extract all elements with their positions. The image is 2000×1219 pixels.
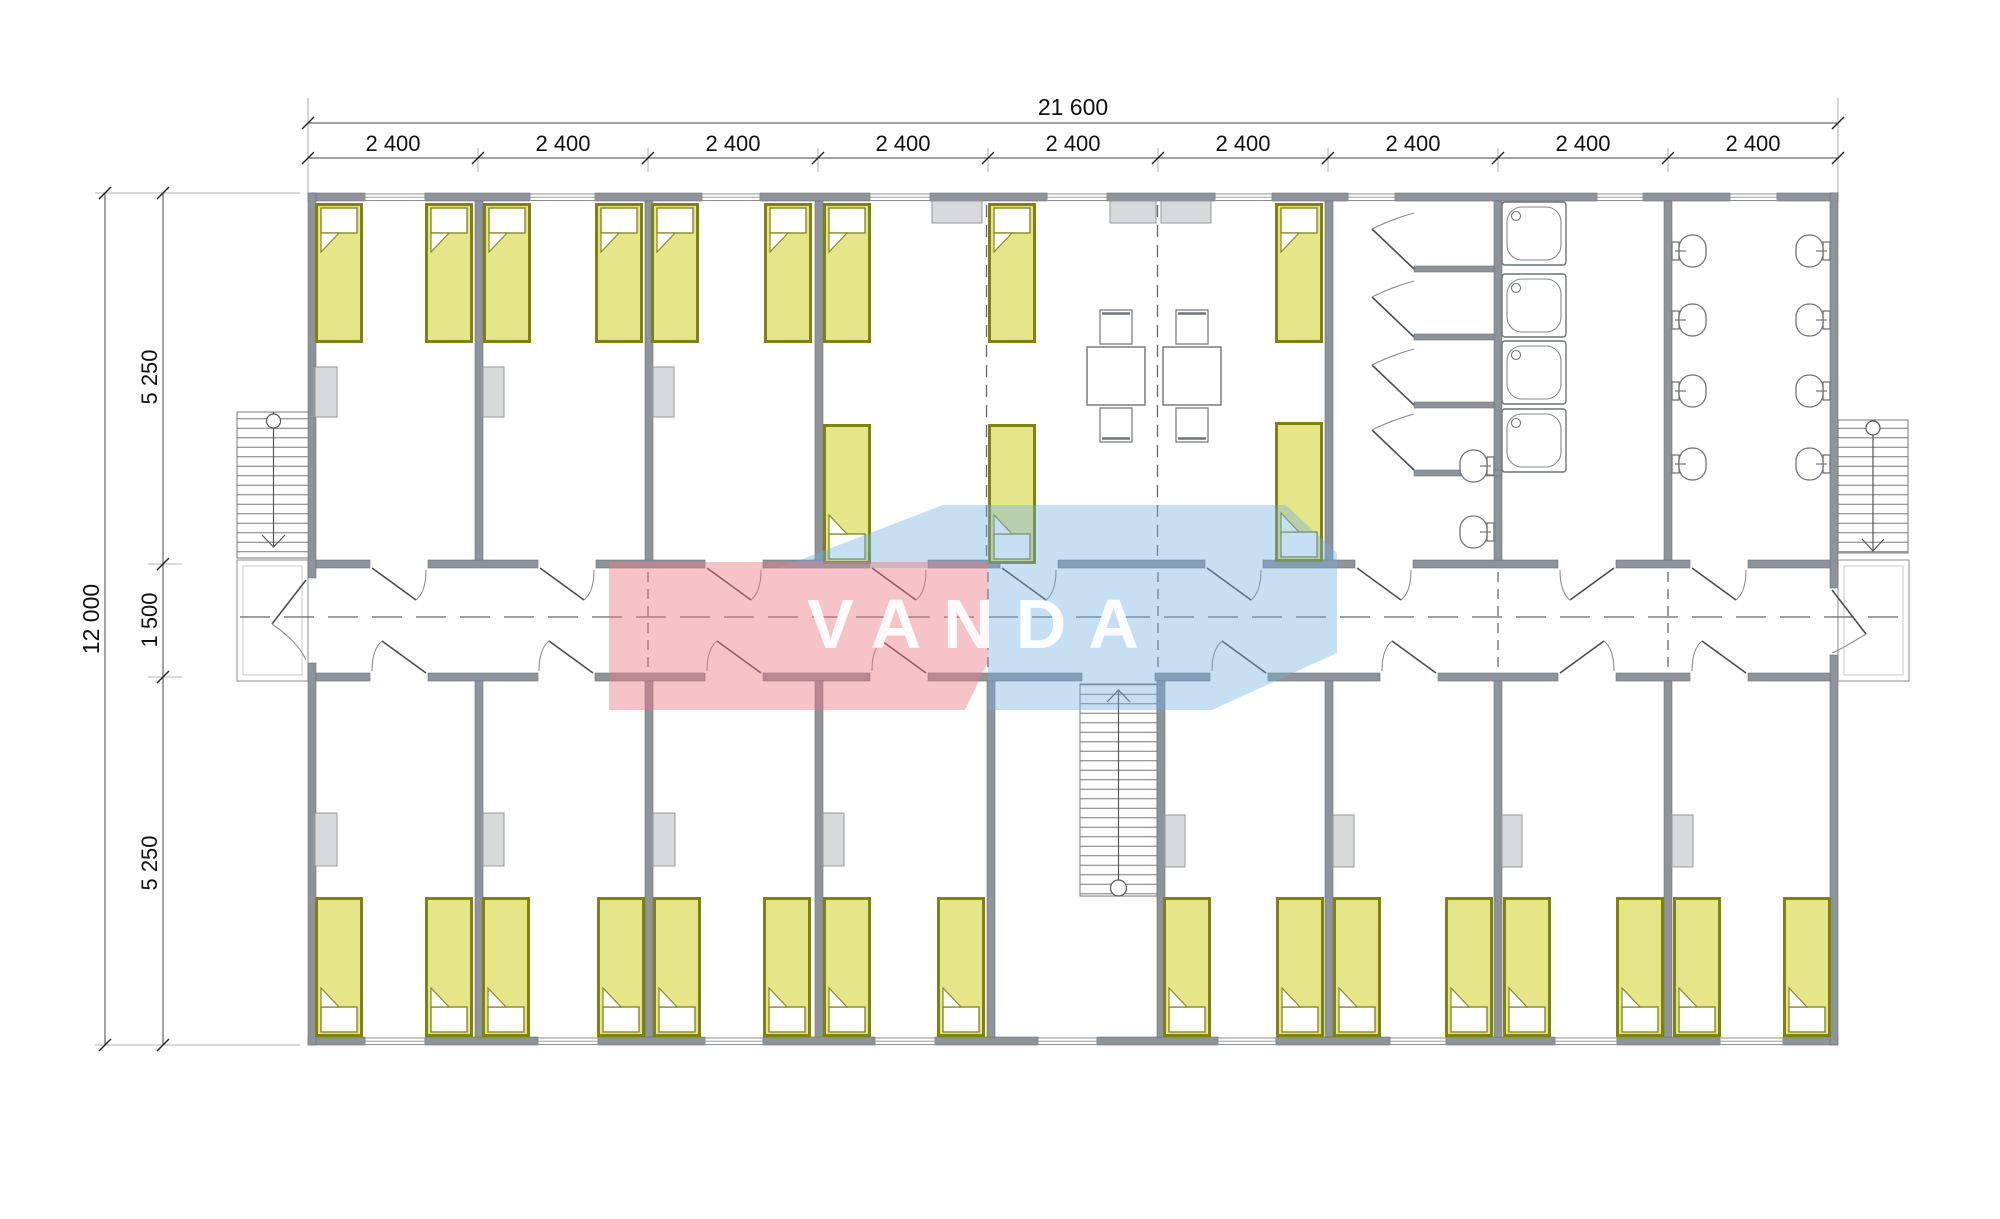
door: [540, 568, 594, 600]
wardrobe: [315, 367, 337, 417]
window: [1215, 194, 1272, 201]
dim-segment: 2 400: [1555, 131, 1610, 156]
bed: [1447, 899, 1492, 1036]
wardrobe: [483, 367, 504, 417]
toilet-room: [1672, 235, 1830, 480]
chair: [1100, 310, 1132, 344]
window: [702, 194, 760, 201]
dim-segment: 1 500: [137, 592, 162, 647]
wardrobe: [653, 813, 675, 866]
door: [1560, 641, 1614, 673]
shower-door: [1372, 297, 1414, 337]
vanda-watermark: VANDA: [609, 505, 1337, 710]
window: [1730, 194, 1777, 201]
toilet: [1796, 375, 1830, 407]
bed: [1165, 899, 1210, 1036]
toilet: [1672, 448, 1706, 480]
toilet: [1672, 304, 1706, 336]
bed: [765, 899, 810, 1036]
bed: [1277, 205, 1322, 342]
toilet: [1796, 304, 1830, 336]
dim-segment: 5 250: [137, 349, 162, 404]
door: [1357, 568, 1411, 600]
left-staircase: [237, 412, 310, 558]
window: [1348, 194, 1395, 201]
window: [1390, 1038, 1446, 1045]
window: [1047, 194, 1107, 201]
door: [372, 641, 426, 673]
bed: [484, 899, 529, 1036]
dim-segment: 2 400: [1385, 131, 1440, 156]
wardrobe: [315, 813, 337, 866]
bed: [766, 205, 811, 342]
door: [1692, 568, 1746, 600]
top-dimension-lines: 21 600 2 400 2 400 2 400 2 400 2 400 2 4…: [302, 94, 1844, 193]
window: [530, 194, 595, 201]
dim-total-width: 21 600: [1038, 94, 1108, 120]
dim-total-height: 12 000: [78, 584, 104, 654]
wash-basin: [1460, 516, 1494, 548]
wardrobe: [483, 813, 504, 866]
right-staircase: [1838, 420, 1908, 553]
bed: [653, 205, 698, 342]
dim-segment: 5 250: [137, 835, 162, 890]
left-dimension-lines: 12 000 5 250 1 500 5 250: [78, 187, 300, 1051]
door: [372, 568, 426, 600]
bed: [485, 205, 530, 342]
dining-area: [1087, 310, 1221, 442]
shower-room: [1372, 202, 1566, 548]
bed: [825, 205, 870, 342]
dim-segment: 2 400: [535, 131, 590, 156]
door: [1560, 568, 1614, 600]
wall-cabinet: [932, 201, 982, 223]
bed: [1618, 899, 1663, 1036]
wardrobe: [1165, 815, 1185, 867]
bed: [427, 899, 472, 1036]
shower-door: [1372, 229, 1414, 269]
window: [538, 1038, 598, 1045]
shower-tray: [1502, 341, 1566, 404]
shower-door: [1372, 430, 1414, 470]
wall-cabinet: [1110, 201, 1156, 223]
window: [870, 194, 930, 201]
wash-basin: [1460, 450, 1494, 482]
dim-segment: 2 400: [875, 131, 930, 156]
wall-cabinet: [1161, 201, 1211, 223]
wardrobe: [653, 367, 674, 417]
dining-table: [1163, 347, 1221, 405]
bed: [1785, 899, 1830, 1036]
window: [1038, 1038, 1097, 1045]
window: [1555, 1038, 1617, 1045]
window: [365, 194, 425, 201]
door: [539, 641, 593, 673]
chair: [1176, 310, 1208, 344]
window: [1720, 1038, 1783, 1045]
dim-segment: 2 400: [1045, 131, 1100, 156]
chair: [1176, 408, 1208, 442]
window: [875, 1038, 935, 1045]
shower-door: [1372, 365, 1414, 405]
shower-tray: [1502, 202, 1566, 265]
toilet: [1796, 235, 1830, 267]
internal-staircase: [1080, 684, 1157, 896]
bed: [825, 899, 870, 1036]
toilet: [1672, 375, 1706, 407]
floor-plan-drawing: 21 600 2 400 2 400 2 400 2 400 2 400 2 4…: [0, 0, 2000, 1219]
wardrobe: [1672, 815, 1693, 867]
window: [705, 1038, 763, 1045]
watermark-text: VANDA: [807, 585, 1161, 663]
left-entrance-vestibule: [237, 560, 308, 681]
wardrobe: [1502, 815, 1522, 867]
floor-plan-page: 21 600 2 400 2 400 2 400 2 400 2 400 2 4…: [0, 0, 2000, 1219]
dim-segment: 2 400: [705, 131, 760, 156]
bed: [655, 899, 700, 1036]
chair: [1100, 408, 1132, 442]
shower-tray: [1502, 409, 1566, 472]
dim-segment: 2 400: [365, 131, 420, 156]
toilet: [1672, 235, 1706, 267]
window: [365, 1038, 425, 1045]
bed: [939, 899, 984, 1036]
bed: [1675, 899, 1720, 1036]
shower-tray: [1502, 274, 1566, 337]
window: [1597, 194, 1643, 201]
bed: [1278, 899, 1323, 1036]
dim-segment: 2 400: [1215, 131, 1270, 156]
dim-segment: 2 400: [1725, 131, 1780, 156]
bed: [597, 205, 642, 342]
exit-door: [272, 580, 306, 660]
door: [1382, 641, 1436, 673]
bed: [317, 205, 362, 342]
bed: [990, 205, 1035, 342]
door: [1692, 641, 1746, 673]
bed: [427, 205, 472, 342]
window: [1218, 1038, 1276, 1045]
bed: [599, 899, 644, 1036]
wardrobe: [823, 813, 844, 866]
toilet: [1796, 448, 1830, 480]
wardrobe: [1333, 815, 1354, 867]
right-entrance-vestibule: [1838, 560, 1909, 681]
bed: [1505, 899, 1550, 1036]
dining-table: [1087, 347, 1145, 405]
bed: [317, 899, 362, 1036]
exit-door: [1832, 590, 1866, 653]
bed: [1335, 899, 1380, 1036]
